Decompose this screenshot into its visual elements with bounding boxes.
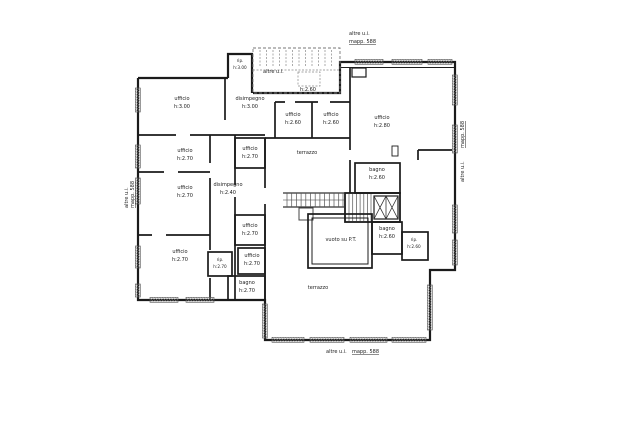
radiator [392,146,398,156]
window [392,59,422,64]
room-label: ufficio [242,146,257,152]
elevator-x-marks [374,196,398,219]
left-side-note-line2: mapp. 588 [130,181,136,208]
room-height: h:2.70 [239,288,255,294]
stair-run [283,193,345,220]
floor-plan-drawing: rip. h:3.00 ufficio h:3.00 disimpegno h:… [0,0,640,427]
room-height: h:2.40 [220,190,236,196]
room-label: terrazzo [308,285,328,291]
parapet [427,285,432,330]
room-height: h:3.00 [233,65,247,70]
window [452,125,457,153]
dashed-stair-treads [253,50,340,70]
pilaster [352,68,366,77]
window [135,88,140,112]
window [135,178,140,204]
room-label: bagno [379,226,395,232]
internal-walls [138,68,452,300]
parapet [310,337,344,342]
room-height: h:2.70 [213,264,227,269]
room-outline [235,215,265,245]
window [452,240,457,265]
room-height: h:2.70 [172,257,188,263]
room-height: h:2.60 [285,120,301,126]
room-label: ufficio [174,96,189,102]
window [355,59,383,64]
room-label: rip. [411,237,418,242]
room-label: ufficio [177,148,192,154]
right-side-note-line1: mapp. 588 [460,121,466,148]
bottom-note-line1: altre u.i. [326,349,347,355]
room-height: h:2.70 [177,193,193,199]
room-height: h:2.70 [244,261,260,267]
parapet [392,337,426,342]
room-height: h:2.60 [379,234,395,240]
right-side-note-line2: altre u.i. [460,161,466,182]
parapet [262,304,267,338]
room-height: h:2.80 [374,123,390,129]
other-unit-stair-label: altre u.i. [263,69,284,75]
window [150,297,178,302]
room-label: ufficio [172,249,187,255]
room-label: disimpegno [235,96,264,102]
corridor-height-label: h:2.60 [300,87,316,93]
top-right-note-line1: altre u.i. [349,31,370,37]
room-label: rip. [237,58,244,63]
bottom-note-line2: mapp. 588 [352,349,379,355]
room-height: h:3.00 [242,104,258,110]
room-height: h:2.70 [177,156,193,162]
room-height: h:2.60 [323,120,339,126]
window [186,297,214,302]
room-height: h:3.00 [174,104,190,110]
window [135,145,140,168]
room-label: ufficio [242,223,257,229]
top-right-note-line2: mapp. 588 [349,39,376,45]
room-height: h:2.60 [369,175,385,181]
parapet [350,337,387,342]
room-label: bagno [369,167,385,173]
room-height: h:2.60 [407,244,421,249]
room-label: terrazzo [297,150,317,156]
room-label: disimpegno [213,182,242,188]
room-label: rip. [217,257,224,262]
room-label: ufficio [177,185,192,191]
room-outline [235,138,265,168]
room-label: ufficio [374,115,389,121]
room-height: h:2.70 [242,154,258,160]
room-label: vuoto su P.T. [325,237,356,243]
window [135,284,140,297]
parapet [272,337,304,342]
room-label: bagno [239,280,255,286]
room-label: ufficio [285,112,300,118]
stair-treads [349,194,371,221]
window [452,205,457,233]
room-label: ufficio [244,253,259,259]
window [135,246,140,268]
window [452,75,457,105]
room-height: h:2.70 [242,231,258,237]
window [428,59,452,64]
room-label: ufficio [323,112,338,118]
dashed-landing [298,72,320,86]
floor-plan-canvas: rip. h:3.00 ufficio h:3.00 disimpegno h:… [0,0,640,427]
